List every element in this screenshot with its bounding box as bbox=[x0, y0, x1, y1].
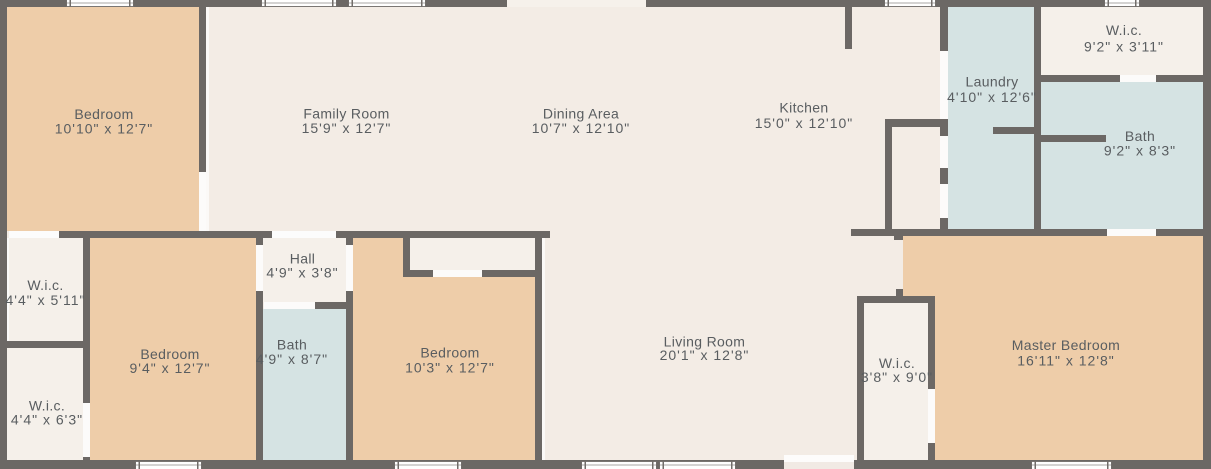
svg-text:9'2" x 3'11": 9'2" x 3'11" bbox=[1084, 39, 1164, 55]
svg-text:4'9" x 8'7": 4'9" x 8'7" bbox=[256, 351, 328, 367]
svg-text:Laundry: Laundry bbox=[965, 74, 1018, 90]
svg-text:Bedroom: Bedroom bbox=[420, 345, 479, 361]
svg-text:9'2" x 8'3": 9'2" x 8'3" bbox=[1104, 142, 1176, 158]
svg-text:Master Bedroom: Master Bedroom bbox=[1012, 337, 1120, 353]
svg-text:10'3" x 12'7": 10'3" x 12'7" bbox=[405, 360, 495, 376]
svg-text:15'9" x 12'7": 15'9" x 12'7" bbox=[302, 120, 392, 136]
svg-text:16'11" x 12'8": 16'11" x 12'8" bbox=[1017, 352, 1115, 368]
svg-text:10'10" x 12'7": 10'10" x 12'7" bbox=[55, 120, 154, 136]
svg-text:3'8" x 9'0": 3'8" x 9'0" bbox=[861, 369, 933, 385]
svg-text:4'9" x 3'8": 4'9" x 3'8" bbox=[266, 265, 338, 281]
svg-text:W.i.c.: W.i.c. bbox=[27, 277, 63, 293]
svg-text:9'4" x 12'7": 9'4" x 12'7" bbox=[130, 360, 211, 376]
svg-text:15'0" x 12'10": 15'0" x 12'10" bbox=[755, 115, 854, 131]
svg-text:10'7" x 12'10": 10'7" x 12'10" bbox=[532, 120, 631, 136]
svg-text:20'1" x 12'8": 20'1" x 12'8" bbox=[660, 347, 750, 363]
svg-text:4'4" x 5'11": 4'4" x 5'11" bbox=[6, 292, 86, 308]
svg-text:Kitchen: Kitchen bbox=[779, 100, 828, 116]
svg-text:4'4" x 6'3": 4'4" x 6'3" bbox=[11, 412, 83, 428]
svg-text:4'10" x 12'6": 4'10" x 12'6" bbox=[947, 89, 1037, 105]
svg-text:W.i.c.: W.i.c. bbox=[1106, 22, 1142, 38]
